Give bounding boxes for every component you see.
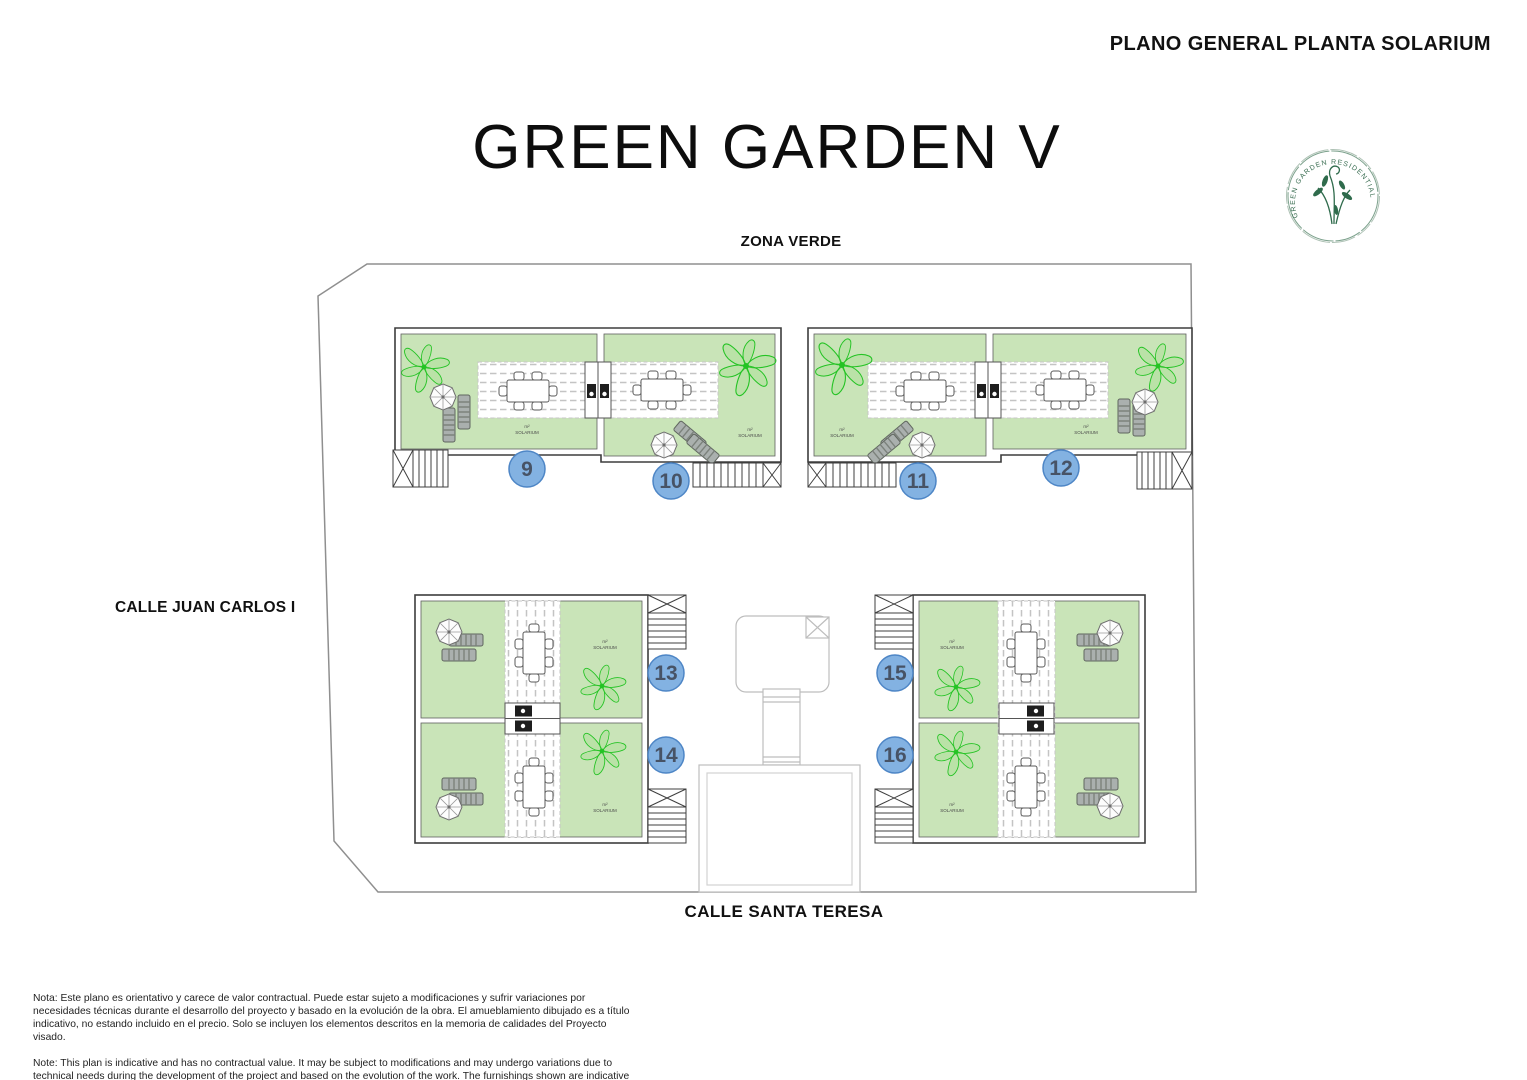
unit-badge-15: 15 <box>877 655 913 691</box>
sun-lounger <box>1084 649 1118 661</box>
area-label: SOLARIUM <box>940 808 964 813</box>
area-label: m² <box>747 427 753 432</box>
stairs <box>875 789 913 843</box>
bbq-module <box>505 703 560 734</box>
stairs <box>648 595 686 649</box>
brand-logo: GREEN GARDEN RESIDENTIAL <box>1287 150 1380 243</box>
stairs <box>1137 452 1192 489</box>
stairs <box>648 789 686 843</box>
parasol-icon <box>1097 793 1123 819</box>
bbq-module <box>975 362 1001 418</box>
plan-page: PLANO GENERAL PLANTA SOLARIUM GREEN GARD… <box>0 0 1527 1080</box>
parasol-icon <box>1132 389 1158 415</box>
note-spanish: Nota: Este plano es orientativo y carece… <box>33 993 633 1044</box>
common-core-outline <box>699 616 860 892</box>
area-label: m² <box>949 802 955 807</box>
unit-badge-11: 11 <box>900 463 936 499</box>
stairs <box>808 463 896 487</box>
area-label: SOLARIUM <box>1074 430 1098 435</box>
area-label: m² <box>1083 424 1089 429</box>
parasol-icon <box>436 619 462 645</box>
area-label: SOLARIUM <box>940 645 964 650</box>
unit-number: 16 <box>883 744 906 767</box>
bbq-module <box>999 703 1054 734</box>
unit-badge-12: 12 <box>1043 450 1079 486</box>
unit-number: 13 <box>654 662 677 685</box>
unit-number: 14 <box>654 744 678 767</box>
sun-lounger <box>458 395 470 429</box>
area-label: SOLARIUM <box>515 430 539 435</box>
unit-number: 12 <box>1049 457 1072 480</box>
parasol-icon <box>1097 620 1123 646</box>
area-label: m² <box>524 424 530 429</box>
area-label: SOLARIUM <box>593 808 617 813</box>
parasol-icon <box>909 432 935 458</box>
floor-plan-drawing: m² SOLARIUM m² SOLARIUM m² S <box>0 0 1527 1080</box>
sun-lounger <box>1118 399 1130 433</box>
block-units-9-10: m² SOLARIUM m² SOLARIUM <box>393 328 781 487</box>
logo-plant-icon <box>1312 166 1354 224</box>
unit-number: 10 <box>659 470 682 493</box>
parasol-icon <box>651 432 677 458</box>
stairs <box>393 450 448 487</box>
parasol-icon <box>430 384 456 410</box>
block-units-11-12: m² SOLARIUM m² SOLARIUM <box>808 328 1192 489</box>
area-label: SOLARIUM <box>593 645 617 650</box>
area-label: m² <box>602 639 608 644</box>
area-label: SOLARIUM <box>830 433 854 438</box>
disclaimer-notes: Nota: Este plano es orientativo y carece… <box>33 993 633 1080</box>
sun-lounger <box>443 408 455 442</box>
block-units-15-16: m² SOLARIUM m² SOLARIUM <box>875 595 1145 843</box>
area-label: m² <box>949 639 955 644</box>
area-label: m² <box>602 802 608 807</box>
unit-number: 9 <box>521 458 533 481</box>
sun-lounger <box>442 649 476 661</box>
area-label: m² <box>839 427 845 432</box>
unit-badge-16: 16 <box>877 737 913 773</box>
parasol-icon <box>436 794 462 820</box>
area-label: SOLARIUM <box>738 433 762 438</box>
sun-lounger <box>442 778 476 790</box>
sun-lounger <box>1084 778 1118 790</box>
unit-badge-13: 13 <box>648 655 684 691</box>
stairs <box>693 463 781 487</box>
stairs <box>875 595 913 649</box>
note-english: Note: This plan is indicative and has no… <box>33 1058 633 1080</box>
unit-badge-9: 9 <box>509 451 545 487</box>
unit-number: 15 <box>883 662 907 685</box>
unit-badge-10: 10 <box>653 463 689 499</box>
bbq-module <box>585 362 611 418</box>
unit-badge-14: 14 <box>648 737 684 773</box>
block-units-13-14: m² SOLARIUM m² SOLARIUM <box>415 595 686 843</box>
unit-number: 11 <box>907 470 930 493</box>
